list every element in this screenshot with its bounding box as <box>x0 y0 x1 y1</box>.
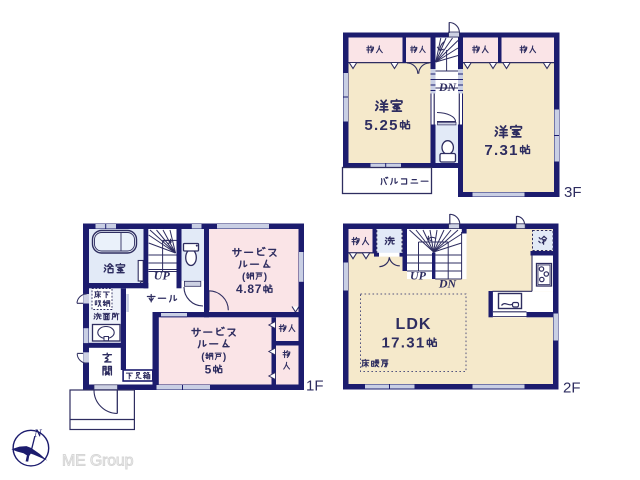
svg-text:5.25: 5.25 <box>364 117 398 134</box>
svg-text:4.87: 4.87 <box>236 282 262 296</box>
svg-text:2F: 2F <box>563 380 581 397</box>
svg-text:UP: UP <box>154 269 171 283</box>
svg-text:UP: UP <box>410 269 427 283</box>
svg-text:DN: DN <box>438 80 458 94</box>
svg-text:17.31: 17.31 <box>382 335 426 352</box>
svg-text:ME Group: ME Group <box>62 453 134 470</box>
svg-text:5: 5 <box>205 362 212 376</box>
svg-text:): ) <box>223 352 226 363</box>
svg-text:1F: 1F <box>306 378 324 395</box>
svg-text:N: N <box>33 429 42 440</box>
svg-text:3F: 3F <box>564 184 582 201</box>
svg-text:DN: DN <box>438 277 458 291</box>
svg-text:7.31: 7.31 <box>484 142 518 159</box>
svg-text:): ) <box>264 272 267 283</box>
svg-text:LDK: LDK <box>396 316 432 333</box>
